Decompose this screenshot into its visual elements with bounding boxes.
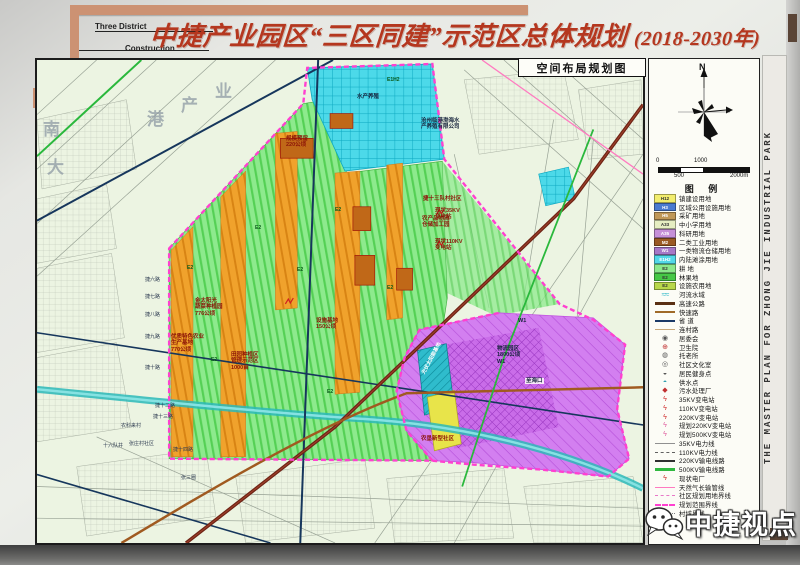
legend-swatch: ϟ <box>654 413 676 421</box>
legend-label: 规划500KV变电站 <box>679 430 731 439</box>
plan-board: Three District Construction 中捷产业园区“三区同建”… <box>0 0 800 565</box>
legend-item: ◓供水点 <box>654 378 758 387</box>
legend-label: 居民健身点 <box>679 369 711 378</box>
legend-label: 中小学用地 <box>679 220 711 229</box>
legend-label: 35KV电力线 <box>679 439 715 448</box>
legend-items: H12镇建设用地H3区域公用设施用地H5采矿用地A33中小学用地A35科研用地M… <box>654 194 758 518</box>
map-graphic <box>37 60 643 543</box>
legend-label: 供水点 <box>679 378 699 387</box>
board-bottom-edge <box>0 545 800 565</box>
legend-label: 镇建设用地 <box>679 194 711 203</box>
legend-label: 托老所 <box>679 351 699 360</box>
legend-label: 科研用地 <box>679 229 705 238</box>
legend-label: 一类物流仓储用地 <box>679 246 731 255</box>
legend-swatch: ϟ <box>654 431 676 439</box>
legend-item: W1一类物流仓储用地 <box>654 247 758 256</box>
legend-item: ϟ现状电厂 <box>654 474 758 483</box>
legend-item: ϟ220KV变电站 <box>654 413 758 422</box>
legend-swatch: ϟ <box>654 474 676 482</box>
legend-swatch: W1 <box>654 247 676 255</box>
legend-item: A33中小学用地 <box>654 220 758 229</box>
legend-swatch <box>654 483 676 491</box>
north-label: N <box>699 62 706 72</box>
legend-item: 35KV电力线 <box>654 439 758 448</box>
page-title: 中捷产业园区“三区同建”示范区总体规划 (2018-2030年) <box>149 16 752 53</box>
legend-item: 省 道 <box>654 317 758 326</box>
legend-item: H12镇建设用地 <box>654 194 758 203</box>
legend-item: 220KV输电线路 <box>654 457 758 466</box>
legend-swatch: ⊕ <box>654 343 676 351</box>
legend-swatch: ≈≈ <box>654 291 676 299</box>
watermark: 中捷视点 <box>643 503 797 542</box>
legend-swatch: ◍ <box>654 352 676 360</box>
legend-item: ◎社区文化室 <box>654 360 758 369</box>
legend-item: E2设施农用地 <box>654 282 758 291</box>
legend-item: E2耕 地 <box>654 264 758 273</box>
legend-swatch: ϟ <box>654 404 676 412</box>
legend-swatch: E1H2 <box>654 256 676 264</box>
side-vertical-title: THE MASTER PLAN FOR ZHONG JIE INDUSTRIAL… <box>763 60 785 534</box>
legend-swatch: M2 <box>654 238 676 246</box>
legend-label: 耕 地 <box>679 264 694 273</box>
legend-label: 快速路 <box>679 308 699 317</box>
frame-top-bar <box>76 5 528 15</box>
legend-swatch <box>654 448 676 456</box>
legend-item: ◆污水处理厂 <box>654 387 758 396</box>
legend-item: ◍托老所 <box>654 352 758 361</box>
legend-label: 连村路 <box>679 325 699 334</box>
legend-item: E1H2内陆滩涂用地 <box>654 255 758 264</box>
legend-swatch: ◉ <box>654 334 676 342</box>
legend-item: ⊕卫生院 <box>654 343 758 352</box>
legend-label: 居委会 <box>679 334 699 343</box>
legend-swatch <box>654 492 676 500</box>
legend-label: 卫生院 <box>679 343 699 352</box>
legend-label: 设施农用地 <box>679 281 711 290</box>
legend-item: 连村路 <box>654 325 758 334</box>
legend-item: M2二类工业用地 <box>654 238 758 247</box>
legend-item: ◉居委会 <box>654 334 758 343</box>
legend-item: 110KV电力线 <box>654 448 758 457</box>
board-right-edge <box>786 0 800 565</box>
legend-label: 220KV输电线路 <box>679 456 725 465</box>
scale-2000: 2000m <box>730 173 748 179</box>
legend-item: ϟ110KV变电站 <box>654 404 758 413</box>
legend-label: 河流水域 <box>679 290 705 299</box>
compass-rose-icon <box>672 62 736 154</box>
scale-1000: 1000 <box>694 158 707 164</box>
legend-swatch: ◆ <box>654 387 676 395</box>
watermark-text: 中捷视点 <box>685 503 797 542</box>
map-title-box: 空间布局规划图 <box>518 58 646 77</box>
legend-swatch: E2 <box>654 273 676 281</box>
legend-label: 220KV变电站 <box>679 413 718 422</box>
legend-swatch <box>654 299 676 307</box>
legend-item: A35科研用地 <box>654 229 758 238</box>
legend-item: H5采矿用地 <box>654 212 758 221</box>
legend-swatch: ϟ <box>654 422 676 430</box>
legend-item: 500KV输电线路 <box>654 465 758 474</box>
legend-label: 省 道 <box>679 316 694 325</box>
legend-label: 林果地 <box>679 273 699 282</box>
legend-label: 内陆滩涂用地 <box>679 255 718 264</box>
legend-item: ϟ规划220KV变电站 <box>654 422 758 431</box>
legend-label: 社区文化室 <box>679 360 711 369</box>
legend-item: ≈≈河流水域 <box>654 290 758 299</box>
legend-swatch: ◓ <box>654 378 676 386</box>
legend-swatch <box>654 439 676 447</box>
legend-label: 采矿用地 <box>679 211 705 220</box>
wechat-icon <box>643 505 685 541</box>
legend-item: 天然气长输管线 <box>654 483 758 492</box>
map-panel <box>35 58 645 545</box>
scale-500: 500 <box>674 173 684 179</box>
page-title-years: (2018-2030年) <box>633 28 761 50</box>
legend-swatch: ϟ <box>654 396 676 404</box>
legend-swatch: H5 <box>654 212 676 220</box>
legend-swatch: E2 <box>654 264 676 272</box>
legend-swatch <box>654 308 676 316</box>
legend-label: 110KV变电站 <box>679 404 718 413</box>
legend-item: E2林果地 <box>654 273 758 282</box>
legend-swatch: A35 <box>654 229 676 237</box>
scale-bar: 0 1000 500 2000m <box>656 158 754 180</box>
legend-item: ϟ35KV变电站 <box>654 395 758 404</box>
legend-swatch: ◒ <box>654 369 676 377</box>
legend-swatch: A33 <box>654 221 676 229</box>
legend-label: 天然气长输管线 <box>679 483 724 492</box>
legend-label: 500KV输电线路 <box>679 465 725 474</box>
legend-item: H3区域公用设施用地 <box>654 203 758 212</box>
legend-swatch <box>654 457 676 465</box>
legend-swatch: H3 <box>654 203 676 211</box>
legend-swatch <box>654 317 676 325</box>
legend-label: 110KV电力线 <box>679 448 718 457</box>
legend-label: 二类工业用地 <box>679 238 718 247</box>
legend-label: 35KV变电站 <box>679 395 715 404</box>
legend-swatch <box>654 466 676 474</box>
legend-label: 规划220KV变电站 <box>679 421 731 430</box>
legend-label: 高速公路 <box>679 299 705 308</box>
legend-label: 现状电厂 <box>679 474 705 483</box>
legend-item: ϟ规划500KV变电站 <box>654 430 758 439</box>
legend-item: 高速公路 <box>654 299 758 308</box>
legend-swatch: ◎ <box>654 361 676 369</box>
legend-item: 社区规划用地界线 <box>654 492 758 501</box>
legend-swatch: E2 <box>654 282 676 290</box>
legend-label: 社区规划用地界线 <box>679 491 731 500</box>
legend-item: 快速路 <box>654 308 758 317</box>
legend-label: 区域公用设施用地 <box>679 203 731 212</box>
legend-item: ◒居民健身点 <box>654 369 758 378</box>
legend-label: 污水处理厂 <box>679 386 711 395</box>
frame-top-right-block <box>788 14 797 42</box>
legend-swatch: H12 <box>654 194 676 202</box>
scale-0: 0 <box>656 158 659 164</box>
legend-swatch <box>654 326 676 334</box>
